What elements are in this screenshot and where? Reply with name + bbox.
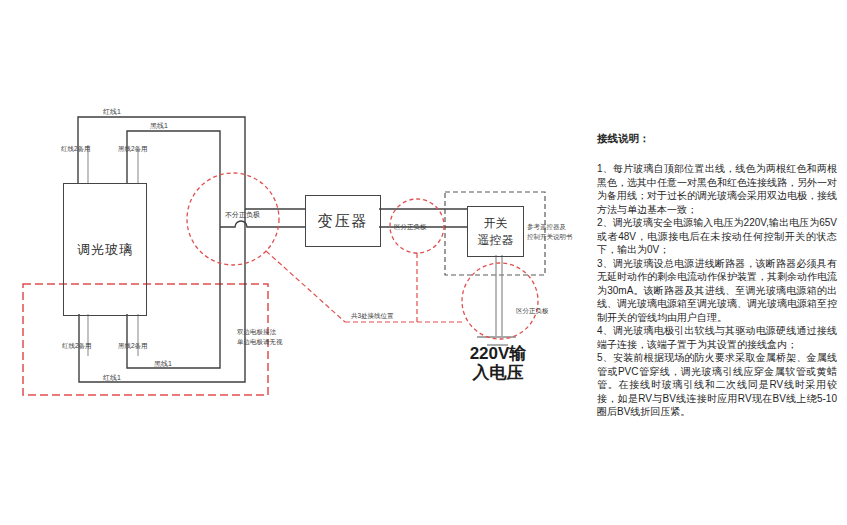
wire-label-black2-bottom: 黑线2备用 — [118, 342, 148, 350]
switch-remote-box: 开关 遥控器 — [467, 206, 524, 257]
wire-label-black1-top: 黑线1 — [150, 122, 168, 130]
transformer-box: 变压器 — [305, 195, 381, 247]
double-electrode-note: 双边电极接法 单边电极请无视 — [237, 327, 283, 347]
wire-label-red2-bottom: 红线2备用 — [62, 342, 92, 350]
switch-remote-label-line1: 开关 — [484, 216, 508, 230]
instructions-panel: 接线说明： 1、每片玻璃自顶部位置出线，线色为两根红色和两根黑色，选其中任意一对… — [597, 132, 837, 419]
remote-manual-note-line2: 控制开关说明书 — [527, 233, 573, 240]
remote-manual-note-line1: 参考遥控器及 — [527, 223, 566, 230]
transformer-label: 变压器 — [318, 212, 369, 231]
transformer-input-bottom-wire — [220, 221, 305, 227]
wiring-positions-label: 共3处接线位置 — [351, 312, 394, 320]
wire-label-black2-top: 黑线2备用 — [118, 145, 148, 153]
instruction-item-1: 1、每片玻璃自顶部位置出线，线色为两根红色和两根黑色，选其中任意一对黑色和红色连… — [597, 162, 837, 216]
wire-label-red1-bottom: 红线1 — [103, 374, 121, 382]
junction-no-polarity-label: 不分正负极 — [225, 211, 260, 219]
voltage-input-line2: 入电压 — [473, 363, 524, 382]
voltage-input-line1: 220V输 — [470, 344, 527, 363]
double-electrode-note-line2: 单边电极请无视 — [237, 338, 283, 345]
wire-label-black1-bottom: 黑线1 — [154, 360, 172, 368]
instruction-item-5: 5、安装前根据现场的防火要求采取金属桥架、金属线管或PVC管穿线，调光玻璃引线应… — [597, 351, 837, 419]
instruction-item-3: 3、调光玻璃设总电源进线断路器，该断路器必须具有无延时动作的剩余电流动作保护装置… — [597, 257, 837, 325]
instruction-item-2: 2、调光玻璃安全电源输入电压为220V,输出电压为65V或者48V，电源接电后在… — [597, 216, 837, 257]
annotation-line-diagonal — [266, 251, 345, 322]
junction-circle-no-polarity — [187, 173, 279, 265]
double-electrode-note-line1: 双边电极接法 — [237, 328, 276, 335]
polarity-label-power-in: 区分正负极 — [516, 307, 549, 315]
wire-label-red1-top: 红线1 — [103, 108, 121, 116]
polarity-label-transformer-out: 区分正负极 — [394, 223, 427, 231]
switch-remote-label-line2: 遥控器 — [478, 233, 514, 247]
instructions-title: 接线说明： — [597, 132, 837, 146]
instruction-item-4: 4、调光玻璃电极引出软线与其驱动电源硬线通过接线端子连接，该端子置于为其设置的接… — [597, 324, 837, 351]
dimming-glass-label: 调光玻璃 — [77, 241, 133, 259]
voltage-input-label: 220V输 入电压 — [450, 344, 546, 382]
wire-label-red2-top: 红线2备用 — [61, 145, 91, 153]
switch-remote-label: 开关 遥控器 — [478, 215, 514, 247]
dimming-glass-box: 调光玻璃 — [63, 183, 147, 316]
remote-manual-note: 参考遥控器及 控制开关说明书 — [527, 222, 573, 242]
wiring-diagram-page: 调光玻璃 变压器 开关 遥控器 红线1 黑线1 红线2备用 黑线2备用 红线2备… — [0, 0, 847, 525]
